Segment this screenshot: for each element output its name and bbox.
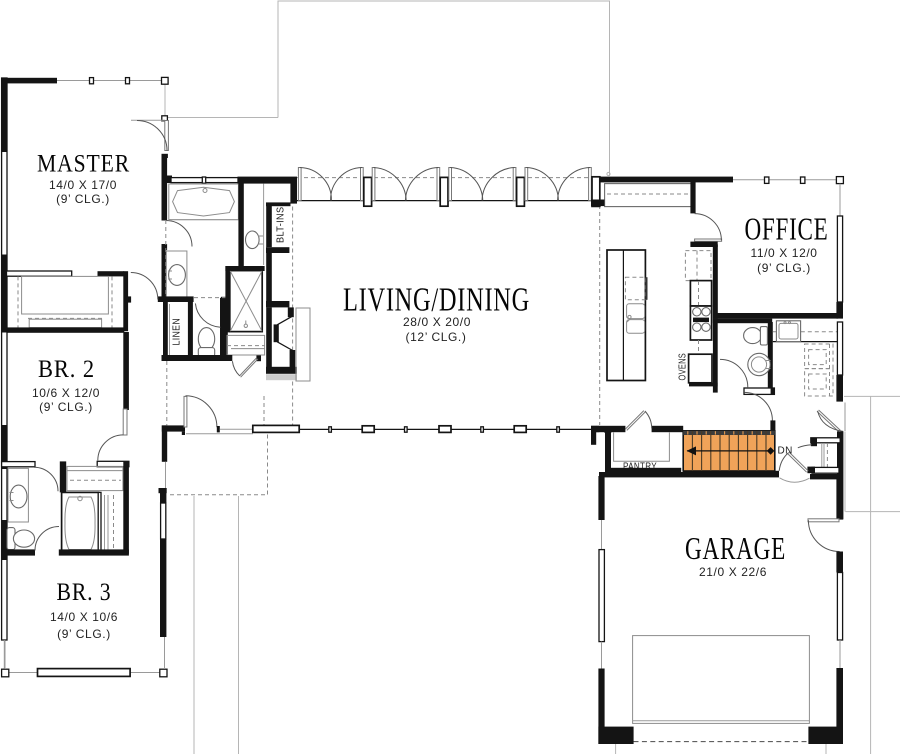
- svg-text:BR. 3: BR. 3: [57, 579, 112, 606]
- svg-text:OFFICE: OFFICE: [745, 212, 829, 247]
- svg-text:LINEN: LINEN: [172, 318, 183, 346]
- svg-text:BR. 2: BR. 2: [38, 356, 95, 383]
- svg-text:BLT-INS: BLT-INS: [276, 207, 287, 244]
- svg-text:OVENS: OVENS: [678, 353, 689, 381]
- svg-text:(9’ CLG.): (9’ CLG.): [757, 261, 811, 275]
- svg-text:(9’ CLG.): (9’ CLG.): [57, 627, 111, 641]
- svg-text:MASTER: MASTER: [37, 151, 130, 178]
- svg-text:28/0 X 20/0: 28/0 X 20/0: [403, 315, 471, 329]
- svg-text:10/6 X 12/0: 10/6 X 12/0: [32, 386, 100, 400]
- svg-text:11/0 X 12/0: 11/0 X 12/0: [750, 246, 817, 260]
- svg-text:(12’ CLG.): (12’ CLG.): [406, 330, 467, 344]
- svg-text:DN: DN: [778, 446, 793, 457]
- svg-text:GARAGE: GARAGE: [685, 531, 786, 566]
- svg-text:14/0 X 10/6: 14/0 X 10/6: [50, 610, 118, 624]
- svg-text:21/0 X 22/6: 21/0 X 22/6: [699, 565, 767, 579]
- svg-text:(9’ CLG.): (9’ CLG.): [39, 400, 93, 414]
- svg-text:(9’ CLG.): (9’ CLG.): [56, 192, 110, 206]
- svg-text:LIVING/DINING: LIVING/DINING: [343, 282, 530, 319]
- svg-text:14/0 X 17/0: 14/0 X 17/0: [49, 178, 117, 192]
